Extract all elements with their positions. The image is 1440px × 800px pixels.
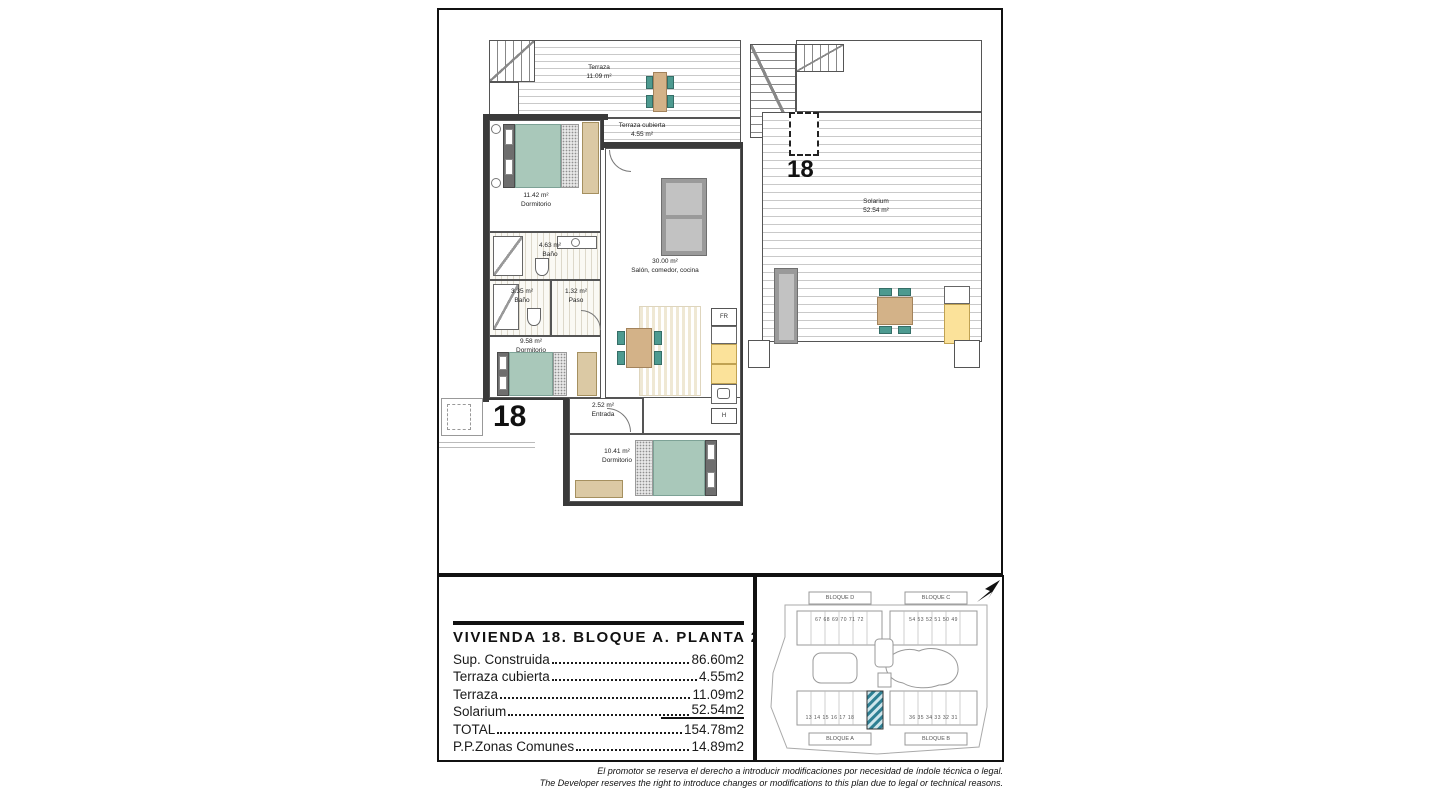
block-b-label: BLOQUE B <box>905 733 967 745</box>
unit-number-solarium: 18 <box>787 156 814 184</box>
summary-row-label: P.P.Zonas Comunes <box>453 739 574 754</box>
terrace-dining-set <box>646 70 674 114</box>
pillow <box>499 356 507 370</box>
landing-dashed <box>447 404 471 430</box>
summary-box: VIVIENDA 18. BLOQUE A. PLANTA 2ª Sup. Co… <box>437 575 755 762</box>
room-area: 4.63 m² <box>525 242 575 251</box>
summary-title: VIVIENDA 18. BLOQUE A. PLANTA 2ª <box>453 629 768 646</box>
summary-row-value: 4.55m2 <box>699 669 744 684</box>
room-area: 1.32 m² <box>553 288 599 297</box>
summary-row-label: Sup. Construida <box>453 652 550 667</box>
table <box>877 297 913 325</box>
chair <box>667 95 674 108</box>
summary-row-value: 11.09m2 <box>692 687 744 702</box>
summary-row-value: 14.89m2 <box>691 739 744 754</box>
room-label-solarium: Solarium 52.54 m² <box>831 198 921 216</box>
sofa-cushion <box>666 219 702 251</box>
pillow <box>505 159 513 175</box>
site-structure <box>878 673 891 687</box>
plans-area-frame: Terraza 11.09 m² Terraza cubierta 4.55 m… <box>437 8 1003 575</box>
unit-numbers-top-left: 67 68 69 70 71 72 <box>797 617 882 623</box>
chair <box>898 288 911 296</box>
dot-leader <box>497 732 682 734</box>
kitchen-cabinet <box>711 344 737 364</box>
fridge-label: FR <box>720 314 728 320</box>
room-area: 30.00 m² <box>617 258 713 267</box>
shaft-closet <box>489 82 519 118</box>
room-label-bano-2: 3.35 m² Baño <box>497 288 547 306</box>
room-label-salon: 30.00 m² Salón, comedor, cocina <box>617 258 713 276</box>
chair <box>617 331 625 345</box>
room-area: 52.54 m² <box>831 207 921 216</box>
room-name: Dormitorio <box>501 201 571 210</box>
chair <box>646 76 653 89</box>
kitchen-sink <box>717 388 730 399</box>
room-name: Terraza cubierta <box>607 122 677 131</box>
bed-throw <box>561 124 579 188</box>
unit-numbers-bottom-right: 36 35 34 33 32 31 <box>890 715 977 721</box>
room-area: 4.55 m² <box>607 131 677 140</box>
dot-leader <box>500 697 690 699</box>
north-arrow-icon <box>977 580 1000 602</box>
title-rule <box>453 621 744 625</box>
summary-row-value: 154.78m2 <box>684 722 744 737</box>
highlighted-unit-18 <box>867 691 883 729</box>
sofa-cushion <box>666 183 702 215</box>
pillow <box>505 129 513 145</box>
room-label-terraza: Terraza 11.09 m² <box>569 64 629 82</box>
block-a-label: BLOQUE A <box>809 733 871 745</box>
solarium-dining-set <box>871 288 919 334</box>
room-area: 11.42 m² <box>501 192 571 201</box>
chair <box>646 95 653 108</box>
toilet <box>535 258 549 276</box>
side-table <box>491 178 501 188</box>
chair <box>617 351 625 365</box>
block-d-label: BLOQUE D <box>809 592 871 604</box>
chair <box>667 76 674 89</box>
solarium-stair-upper <box>796 44 844 72</box>
site-line <box>439 447 535 448</box>
room-area: 2.52 m² <box>573 402 633 411</box>
chair <box>898 326 911 334</box>
summary-row: Terraza 11.09m2 <box>453 684 744 702</box>
chair <box>879 326 892 334</box>
disclaimer-es: El promotor se reserva el derecho a intr… <box>437 765 1003 777</box>
summary-row-label: Terraza <box>453 687 498 702</box>
summary-row-label: Solarium <box>453 704 506 719</box>
side-table <box>491 124 501 134</box>
chair <box>654 331 662 345</box>
stair-opening-dashed <box>789 112 819 156</box>
hob-label: H <box>722 413 726 419</box>
summary-rows: Sup. Construida 86.60m2 Terraza cubierta… <box>453 649 744 754</box>
room-name: Terraza <box>569 64 629 73</box>
pillar <box>954 340 980 368</box>
room-name: Paso <box>553 297 599 306</box>
room-label-terraza-cubierta: Terraza cubierta 4.55 m² <box>607 122 677 140</box>
summary-row-label: Terraza cubierta <box>453 669 550 684</box>
room-name: Solarium <box>831 198 921 207</box>
chair <box>654 351 662 365</box>
room-name: Baño <box>497 297 547 306</box>
room-area: 11.09 m² <box>569 73 629 82</box>
summary-row: P.P.Zonas Comunes 14.89m2 <box>453 737 744 755</box>
pillow <box>707 444 715 460</box>
site-plan-drawing <box>757 577 1006 760</box>
pillow <box>707 472 715 488</box>
summary-row: Terraza cubierta 4.55m2 <box>453 667 744 685</box>
bed-throw <box>635 440 653 496</box>
summary-row-label: TOTAL <box>453 722 495 737</box>
block-c-label: BLOQUE C <box>905 592 967 604</box>
room-name: Baño <box>525 251 575 260</box>
room-label-bano-1: 4.63 m² Baño <box>525 242 575 260</box>
solarium-bar-sink <box>944 286 970 304</box>
room-area: 3.35 m² <box>497 288 547 297</box>
site-plan-box: BLOQUE D BLOQUE C BLOQUE A BLOQUE B 67 6… <box>755 575 1004 762</box>
site-line <box>439 442 535 443</box>
room-label-paso: 1.32 m² Paso <box>553 288 599 306</box>
wardrobe <box>575 480 623 498</box>
dining-set <box>617 326 663 370</box>
chair <box>879 288 892 296</box>
bed-mattress <box>653 440 705 496</box>
room-area: 9.58 m² <box>499 338 563 347</box>
disclaimer: El promotor se reserva el derecho a intr… <box>437 765 1003 789</box>
site-structure <box>875 639 893 667</box>
kitchen-counter <box>711 326 737 344</box>
wardrobe <box>582 122 599 194</box>
summary-row: Sup. Construida 86.60m2 <box>453 649 744 667</box>
table <box>626 328 652 368</box>
toilet <box>527 308 541 326</box>
kitchen-cabinet <box>711 364 737 384</box>
pool-left <box>813 653 857 683</box>
communal-stair <box>489 40 535 82</box>
pillow <box>499 376 507 390</box>
summary-row: Solarium 52.54m2 <box>453 702 744 720</box>
dot-leader <box>576 749 689 751</box>
fridge-box: FR <box>711 308 737 326</box>
unit-numbers-top-right: 54 53 52 51 50 49 <box>890 617 977 623</box>
sofa <box>661 178 707 256</box>
lounger <box>774 268 798 344</box>
unit-numbers-bottom-left: 13 14 15 16 17 18 <box>793 715 867 721</box>
dot-leader <box>552 662 690 664</box>
page: { "colors": { "wall_dark": "#3a3a3a", "f… <box>0 0 1440 800</box>
room-label-dormitorio-1: 11.42 m² Dormitorio <box>501 192 571 210</box>
table <box>653 72 667 112</box>
solarium-bar <box>944 304 970 344</box>
disclaimer-en: The Developer reserves the right to intr… <box>437 777 1003 789</box>
summary-row-value: 86.60m2 <box>691 652 744 667</box>
bed-throw <box>553 352 567 396</box>
summary-row: TOTAL 154.78m2 <box>453 719 744 737</box>
unit-number-main: 18 <box>493 400 526 434</box>
bed-mattress <box>515 124 561 188</box>
lounger-cushion <box>779 274 794 340</box>
summary-row-value: 52.54m2 <box>661 702 744 719</box>
shower <box>493 236 523 276</box>
room-name: Salón, comedor, cocina <box>617 267 713 276</box>
dot-leader <box>552 679 697 681</box>
wardrobe <box>577 352 597 396</box>
hob-box: H <box>711 408 737 424</box>
pool-right <box>886 649 958 688</box>
bed-mattress <box>509 352 553 396</box>
pillar <box>748 340 770 368</box>
